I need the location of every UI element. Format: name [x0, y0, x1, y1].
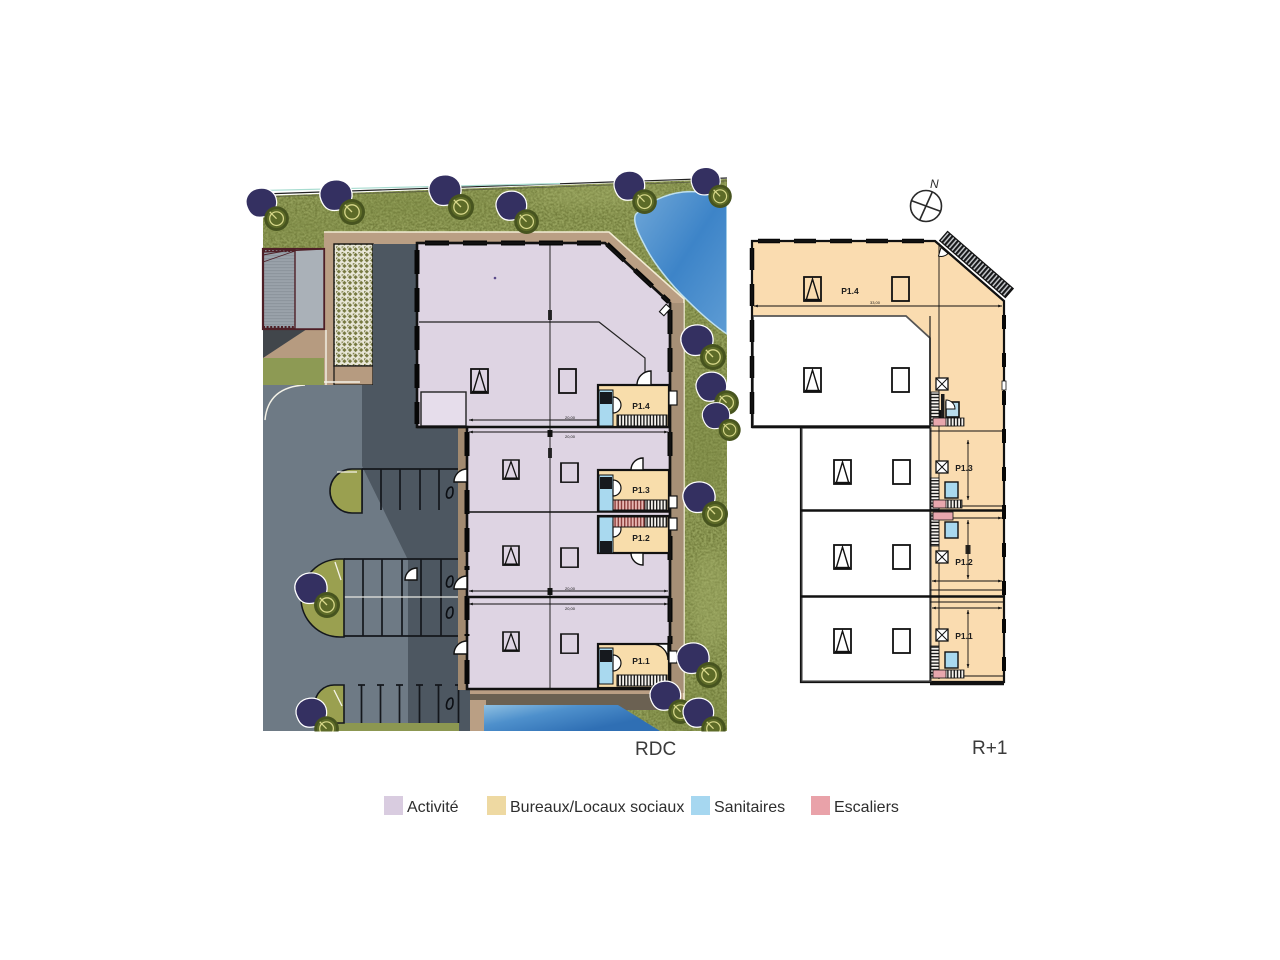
svg-text:Escaliers: Escaliers — [834, 799, 899, 816]
svg-text:P1.4: P1.4 — [841, 286, 859, 296]
svg-text:20,00: 20,00 — [565, 434, 576, 439]
svg-text:P1.2: P1.2 — [955, 557, 973, 567]
svg-text:P1.3: P1.3 — [955, 463, 973, 473]
svg-text:P1.3: P1.3 — [632, 485, 650, 495]
svg-text:20,00: 20,00 — [565, 586, 576, 591]
svg-text:RDC: RDC — [635, 739, 676, 760]
svg-text:P1.1: P1.1 — [632, 656, 650, 666]
svg-text:20,00: 20,00 — [565, 415, 576, 420]
svg-text:Sanitaires: Sanitaires — [714, 799, 785, 816]
svg-text:R+1: R+1 — [972, 738, 1007, 759]
svg-text:P1.1: P1.1 — [955, 631, 973, 641]
svg-text:33,00: 33,00 — [870, 300, 881, 305]
svg-text:N: N — [930, 177, 939, 191]
svg-text:Bureaux/Locaux sociaux: Bureaux/Locaux sociaux — [510, 799, 684, 816]
svg-text:Activité: Activité — [407, 799, 459, 816]
svg-text:P1.4: P1.4 — [632, 401, 650, 411]
svg-text:P1.2: P1.2 — [632, 533, 650, 543]
svg-text:20,00: 20,00 — [565, 606, 576, 611]
